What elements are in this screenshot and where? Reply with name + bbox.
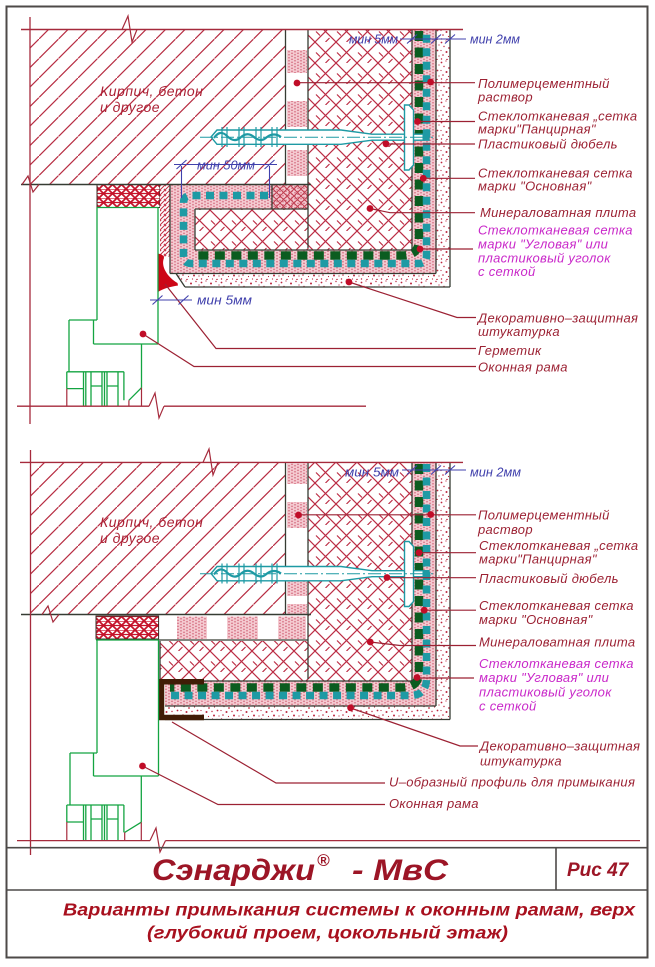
svg-text:мин 2мм: мин 2мм <box>470 466 521 480</box>
svg-text:раствор: раствор <box>477 90 533 105</box>
svg-text:марки"Панцирная": марки"Панцирная" <box>479 552 598 567</box>
svg-text:Сэнарджи: Сэнарджи <box>152 854 315 887</box>
svg-text:Стеклотканевая сетка: Стеклотканевая сетка <box>479 656 634 671</box>
svg-text:марки"Панцирная": марки"Панцирная" <box>478 122 597 137</box>
svg-text:мин 50мм: мин 50мм <box>197 159 255 173</box>
svg-text:мин 5мм: мин 5мм <box>345 466 399 480</box>
svg-text:мин 2мм: мин 2мм <box>470 33 520 47</box>
svg-text:Оконная рама: Оконная рама <box>478 360 568 375</box>
svg-text:- МвС: - МвС <box>352 854 450 887</box>
svg-text:Рис 47: Рис 47 <box>567 860 630 881</box>
svg-text:®: ® <box>317 851 330 870</box>
svg-text:раствор: раствор <box>477 522 533 537</box>
svg-text:Стеклотканевая сетка: Стеклотканевая сетка <box>478 223 633 238</box>
svg-text:с сеткой: с сеткой <box>478 264 536 279</box>
svg-text:Кирпич, бетон: Кирпич, бетон <box>100 514 203 530</box>
svg-text:Пластиковый дюбель: Пластиковый дюбель <box>479 571 619 586</box>
svg-text:Герметик: Герметик <box>478 343 542 358</box>
svg-text:Минераловатная плита: Минераловатная плита <box>479 635 635 650</box>
svg-text:Минераловатная плита: Минераловатная плита <box>480 205 636 220</box>
svg-text:штукатурка: штукатурка <box>478 324 560 339</box>
svg-text:штукатурка: штукатурка <box>480 754 562 769</box>
svg-text:Декоративно–защитная: Декоративно–защитная <box>478 739 640 754</box>
svg-text:Кирпич, бетон: Кирпич, бетон <box>100 83 203 99</box>
svg-text:Варианты примыкания системы к: Варианты примыкания системы к оконным ра… <box>63 900 636 920</box>
svg-text:(глубокий проем, цокольный эта: (глубокий проем, цокольный этаж) <box>147 923 508 943</box>
svg-text:пластиковый уголок: пластиковый уголок <box>479 685 612 700</box>
svg-text:и другое: и другое <box>100 530 160 546</box>
svg-text:Стеклотканевая сетка: Стеклотканевая сетка <box>479 598 634 613</box>
svg-text:марки "Основная": марки "Основная" <box>478 179 593 194</box>
svg-text:мин 5мм: мин 5мм <box>197 294 252 308</box>
svg-text:с сеткой: с сеткой <box>479 699 537 714</box>
svg-text:марки "Угловая" или: марки "Угловая" или <box>479 670 609 685</box>
svg-text:мин 5мм: мин 5мм <box>349 33 398 47</box>
svg-text:и другое: и другое <box>100 99 160 115</box>
svg-text:Полимерцементный: Полимерцементный <box>478 508 610 523</box>
svg-text:Пластиковый дюбель: Пластиковый дюбель <box>478 137 618 152</box>
svg-text:U–образный профиль для прим: U–образный профиль для примыкания <box>389 775 635 790</box>
svg-text:Оконная рама: Оконная рама <box>389 796 479 811</box>
svg-text:марки "Угловая" или: марки "Угловая" или <box>478 237 608 252</box>
svg-text:марки "Основная": марки "Основная" <box>479 612 594 627</box>
